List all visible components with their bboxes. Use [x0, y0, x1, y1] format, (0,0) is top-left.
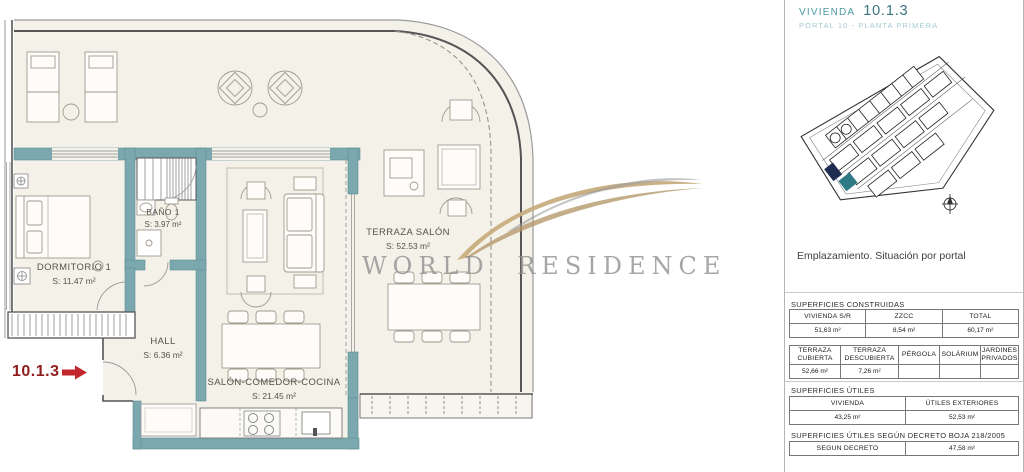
- table-cell: 60,17 m²: [942, 324, 1018, 338]
- decreto-table: SEGUN DECRETO 47,58 m²: [789, 441, 1019, 456]
- decreto-heading: SUPERFICIES ÚTILES SEGÚN DECRETO BOJA 21…: [791, 431, 1005, 440]
- table-value-row: 43,25 m² 52,53 m²: [790, 411, 1019, 425]
- table-cell: 52,53 m²: [906, 411, 1019, 425]
- kitchen: [141, 404, 342, 438]
- plan-sheet: DORMITORIO 1 S: 11.47 m² BAÑO 1 S: 3.97 …: [0, 0, 1024, 472]
- table-header-row: TERRAZA CUBIERTA TERRAZA DESCUBIERTA PÉR…: [790, 346, 1019, 365]
- table-cell: VIVIENDA: [790, 397, 906, 411]
- compass-icon: [942, 194, 958, 214]
- table-value-row: 52,66 m² 7,26 m²: [790, 365, 1019, 379]
- vivienda-label: VIVIENDA: [799, 7, 855, 18]
- arrow-right-icon: [62, 365, 88, 380]
- site-map: [785, 46, 1023, 242]
- table-cell: PÉRGOLA: [899, 346, 940, 365]
- section-divider: [785, 381, 1023, 382]
- table-cell: [899, 365, 940, 379]
- table-cell: TERRAZA CUBIERTA: [790, 346, 841, 365]
- table-cell: 47,58 m²: [906, 442, 1019, 456]
- table-cell: 8,54 m²: [866, 324, 942, 338]
- table-cell: TOTAL: [942, 310, 1018, 324]
- watermark-brand-text: WORLD RESIDENCE: [362, 252, 662, 280]
- info-panel: VIVIENDA 10.1.3 PORTAL 10 - PLANTA PRIME…: [784, 0, 1024, 472]
- construidas-heading: SUPERFICIES CONSTRUIDAS: [791, 300, 905, 309]
- section-divider: [785, 292, 1023, 293]
- table-cell: 51,63 m²: [790, 324, 866, 338]
- unit-pointer: 10.1.3: [12, 363, 88, 381]
- table-cell: SOLÁRIUM: [940, 346, 981, 365]
- table-header-row: VIVIENDA S/R ZZCC TOTAL: [790, 310, 1019, 324]
- table-cell: ÚTILES EXTERIORES: [906, 397, 1019, 411]
- unit-number-label: 10.1.3: [12, 363, 59, 381]
- table-cell: 43,25 m²: [790, 411, 906, 425]
- utiles-table: VIVIENDA ÚTILES EXTERIORES 43,25 m² 52,5…: [789, 396, 1019, 425]
- table-header-row: VIVIENDA ÚTILES EXTERIORES: [790, 397, 1019, 411]
- table-row: SEGUN DECRETO 47,58 m²: [790, 442, 1019, 456]
- panel-header: VIVIENDA 10.1.3 PORTAL 10 - PLANTA PRIME…: [799, 3, 938, 30]
- site-map-caption: Emplazamiento. Situación por portal: [797, 250, 966, 262]
- construidas-exterior-table: TERRAZA CUBIERTA TERRAZA DESCUBIERTA PÉR…: [789, 345, 1019, 379]
- terrace-railing: [360, 394, 533, 418]
- table-cell: [940, 365, 981, 379]
- louver-window: [8, 312, 135, 338]
- table-value-row: 51,63 m² 8,54 m² 60,17 m²: [790, 324, 1019, 338]
- utiles-heading: SUPERFICIES ÚTILES: [791, 386, 875, 395]
- table-cell: 52,66 m²: [790, 365, 841, 379]
- table-cell: [981, 365, 1019, 379]
- table-cell: SEGUN DECRETO: [790, 442, 906, 456]
- table-cell: VIVIENDA S/R: [790, 310, 866, 324]
- vivienda-number: 10.1.3: [863, 3, 908, 19]
- table-cell: 7,26 m²: [841, 365, 899, 379]
- site-plan-group: [795, 46, 1012, 242]
- floor-plan-area: DORMITORIO 1 S: 11.47 m² BAÑO 1 S: 3.97 …: [0, 0, 780, 472]
- construidas-main-table: VIVIENDA S/R ZZCC TOTAL 51,63 m² 8,54 m²…: [789, 309, 1019, 338]
- table-cell: JARDINES PRIVADOS: [981, 346, 1019, 365]
- table-cell: ZZCC: [866, 310, 942, 324]
- portal-subtitle: PORTAL 10 - PLANTA PRIMERA: [799, 21, 938, 30]
- table-cell: TERRAZA DESCUBIERTA: [841, 346, 899, 365]
- wardrobe: [137, 158, 196, 200]
